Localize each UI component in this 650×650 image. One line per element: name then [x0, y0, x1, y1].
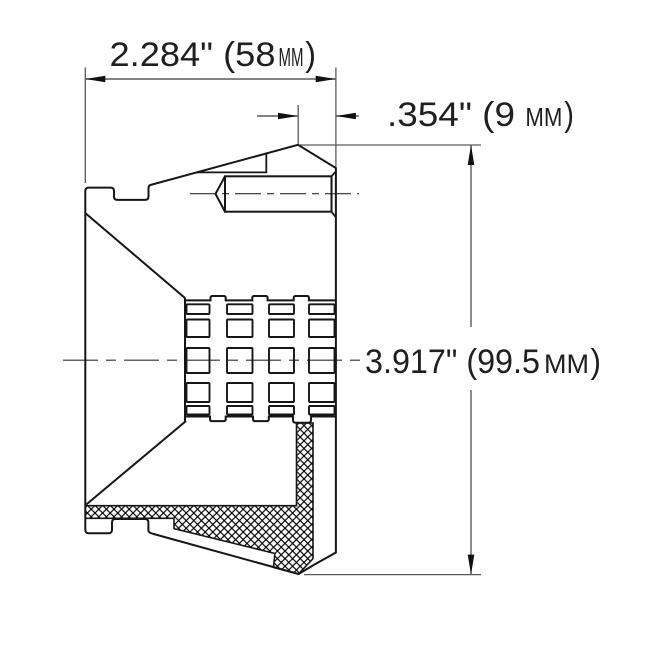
svg-text:): ) — [591, 343, 602, 381]
svg-text:3.917" (99.5: 3.917" (99.5 — [365, 343, 540, 381]
svg-text:2.284" (58: 2.284" (58 — [110, 36, 276, 74]
svg-text:MM: MM — [279, 42, 304, 72]
svg-text:): ) — [305, 36, 316, 74]
svg-text:MM: MM — [544, 349, 589, 379]
svg-text:): ) — [564, 96, 574, 134]
svg-text:.354" (9: .354" (9 — [387, 96, 515, 134]
svg-text:MM: MM — [525, 102, 562, 132]
